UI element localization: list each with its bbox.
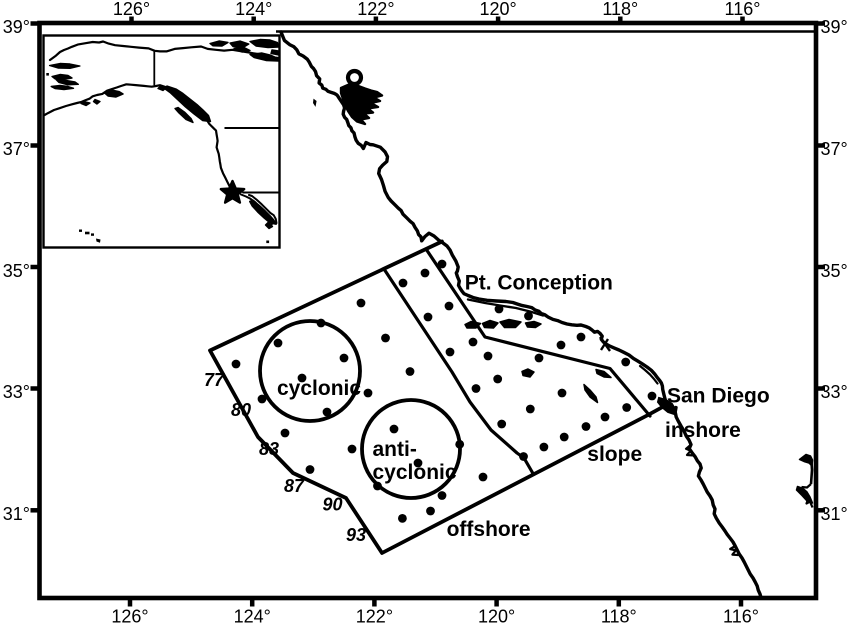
- svg-text:39°: 39°: [3, 17, 30, 37]
- svg-text:90: 90: [323, 495, 343, 515]
- svg-text:124°: 124°: [234, 607, 271, 626]
- svg-text:87: 87: [284, 476, 305, 496]
- svg-text:116°: 116°: [725, 0, 761, 19]
- svg-text:83: 83: [259, 439, 279, 459]
- svg-text:39°: 39°: [821, 17, 848, 37]
- svg-text:124°: 124°: [235, 0, 272, 19]
- svg-text:35°: 35°: [821, 261, 848, 281]
- svg-text:inshore: inshore: [665, 419, 741, 442]
- svg-text:116°: 116°: [723, 607, 759, 626]
- svg-text:126°: 126°: [113, 0, 150, 19]
- svg-text:slope: slope: [587, 443, 642, 466]
- svg-text:Pt. Conception: Pt. Conception: [465, 272, 613, 295]
- svg-text:offshore: offshore: [447, 518, 531, 541]
- svg-text:37°: 37°: [821, 139, 848, 159]
- svg-text:122°: 122°: [357, 0, 394, 19]
- svg-text:31°: 31°: [821, 504, 848, 524]
- svg-text:33°: 33°: [821, 382, 848, 402]
- svg-text:118°: 118°: [601, 607, 637, 626]
- svg-text:120°: 120°: [479, 0, 516, 19]
- svg-text:80: 80: [231, 400, 251, 420]
- svg-text:118°: 118°: [602, 0, 638, 19]
- svg-text:33°: 33°: [3, 382, 30, 402]
- svg-text:120°: 120°: [478, 607, 515, 626]
- svg-text:126°: 126°: [111, 607, 148, 626]
- svg-text:cyclonic: cyclonic: [373, 461, 457, 484]
- svg-text:cyclonic: cyclonic: [277, 377, 361, 400]
- svg-text:37°: 37°: [3, 139, 30, 159]
- svg-text:35°: 35°: [3, 261, 30, 281]
- svg-text:122°: 122°: [356, 607, 393, 626]
- svg-text:77: 77: [204, 370, 225, 390]
- svg-text:93: 93: [346, 525, 366, 545]
- svg-text:San Diego: San Diego: [667, 385, 770, 408]
- svg-text:31°: 31°: [3, 504, 30, 524]
- svg-text:anti-: anti-: [373, 438, 417, 461]
